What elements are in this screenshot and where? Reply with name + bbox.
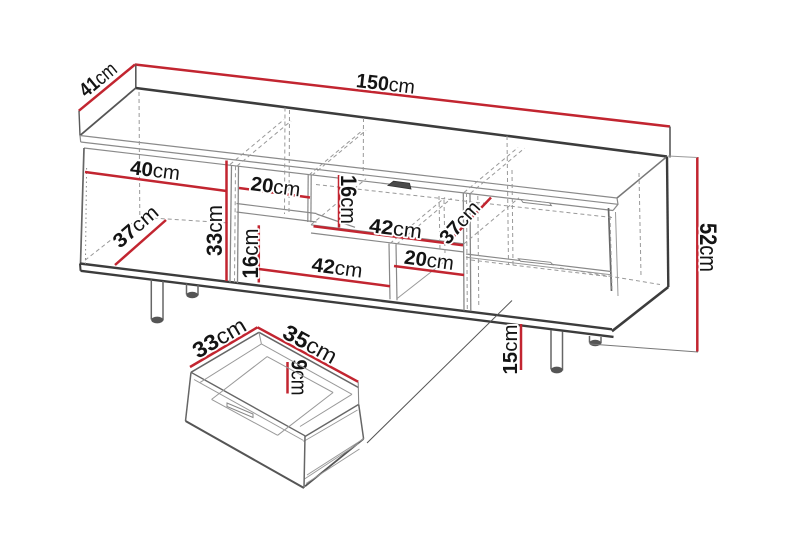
svg-text:15cm: 15cm [500,325,522,375]
svg-text:16cm: 16cm [238,229,263,279]
svg-text:52cm: 52cm [694,223,721,272]
svg-text:16cm: 16cm [336,175,361,224]
svg-text:33cm: 33cm [202,205,227,256]
